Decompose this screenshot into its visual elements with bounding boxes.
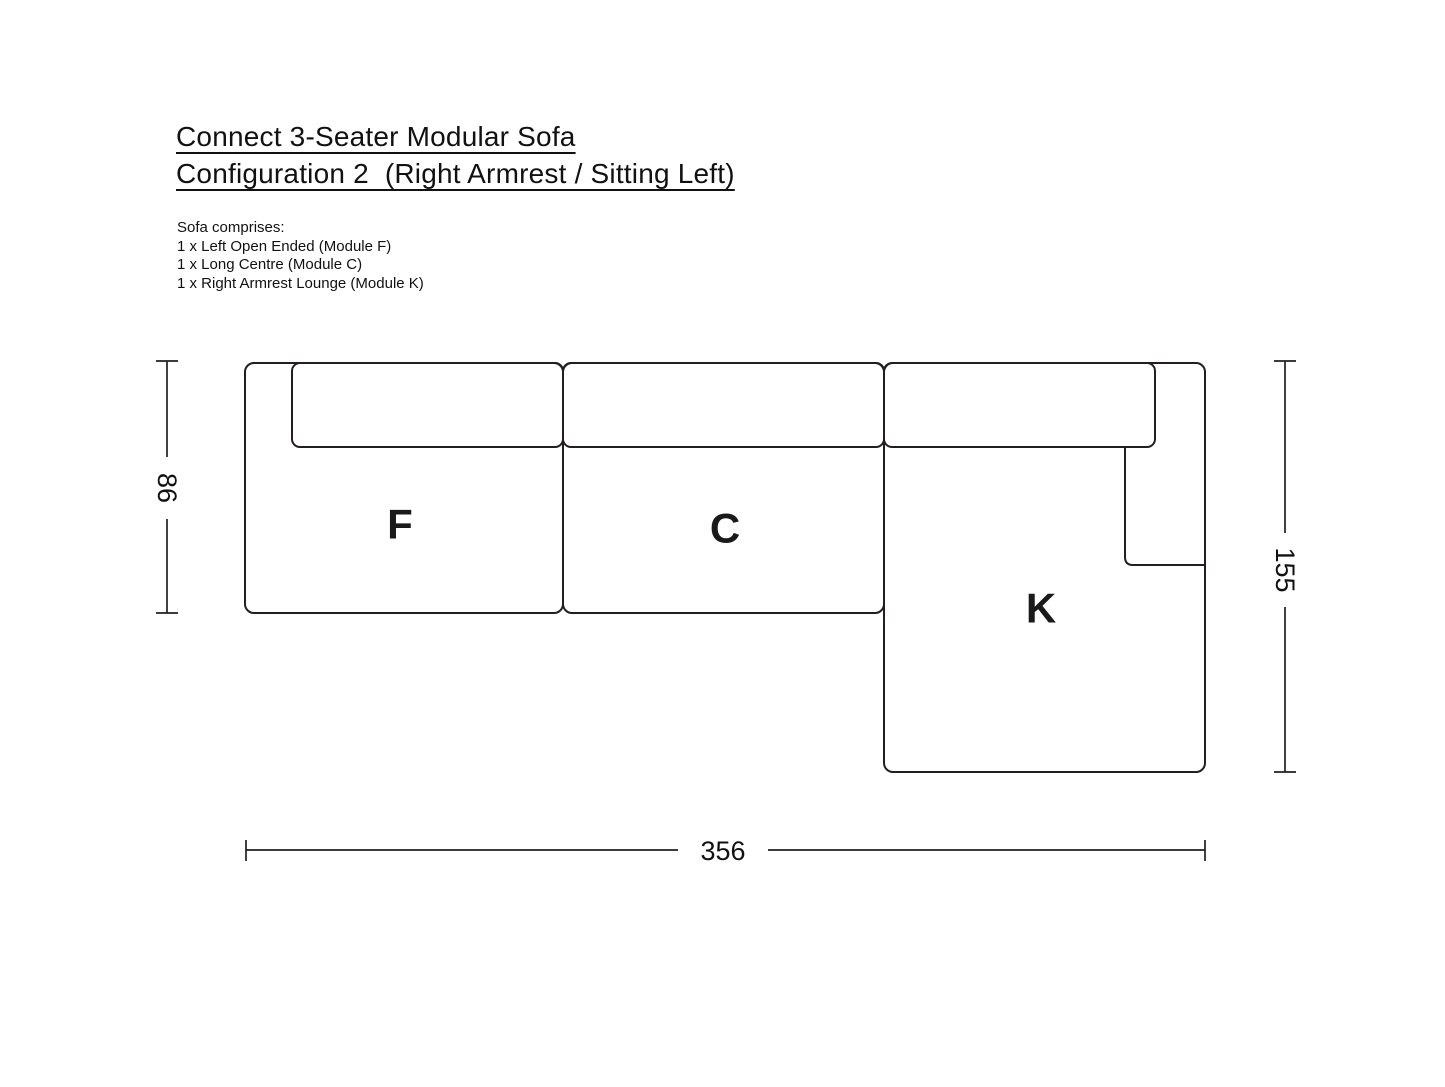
module-k-label: K xyxy=(1026,585,1056,632)
dimension-lounge-depth: 155 xyxy=(1268,361,1302,772)
module-c-outline xyxy=(563,363,884,613)
spec-sheet-page: Connect 3-Seater Modular Sofa Configurat… xyxy=(0,0,1445,1087)
dimension-width: 356 xyxy=(246,834,1205,867)
dimension-depth: 86 xyxy=(150,361,184,613)
module-k-backrest-cushion xyxy=(884,363,1155,447)
module-c-backrest-cushion xyxy=(563,363,884,447)
dimension-width-label: 356 xyxy=(700,836,745,866)
dimension-lounge-depth-label: 155 xyxy=(1270,547,1300,592)
module-f-backrest-cushion xyxy=(292,363,563,447)
module-c-label: C xyxy=(710,505,740,552)
module-k-outline xyxy=(884,363,1205,772)
dimension-depth-label: 86 xyxy=(152,473,182,503)
module-f-label: F xyxy=(387,501,413,548)
sofa-diagram: F C K 86 155 356 xyxy=(0,0,1445,1087)
module-k-armrest-edge xyxy=(1125,447,1205,565)
